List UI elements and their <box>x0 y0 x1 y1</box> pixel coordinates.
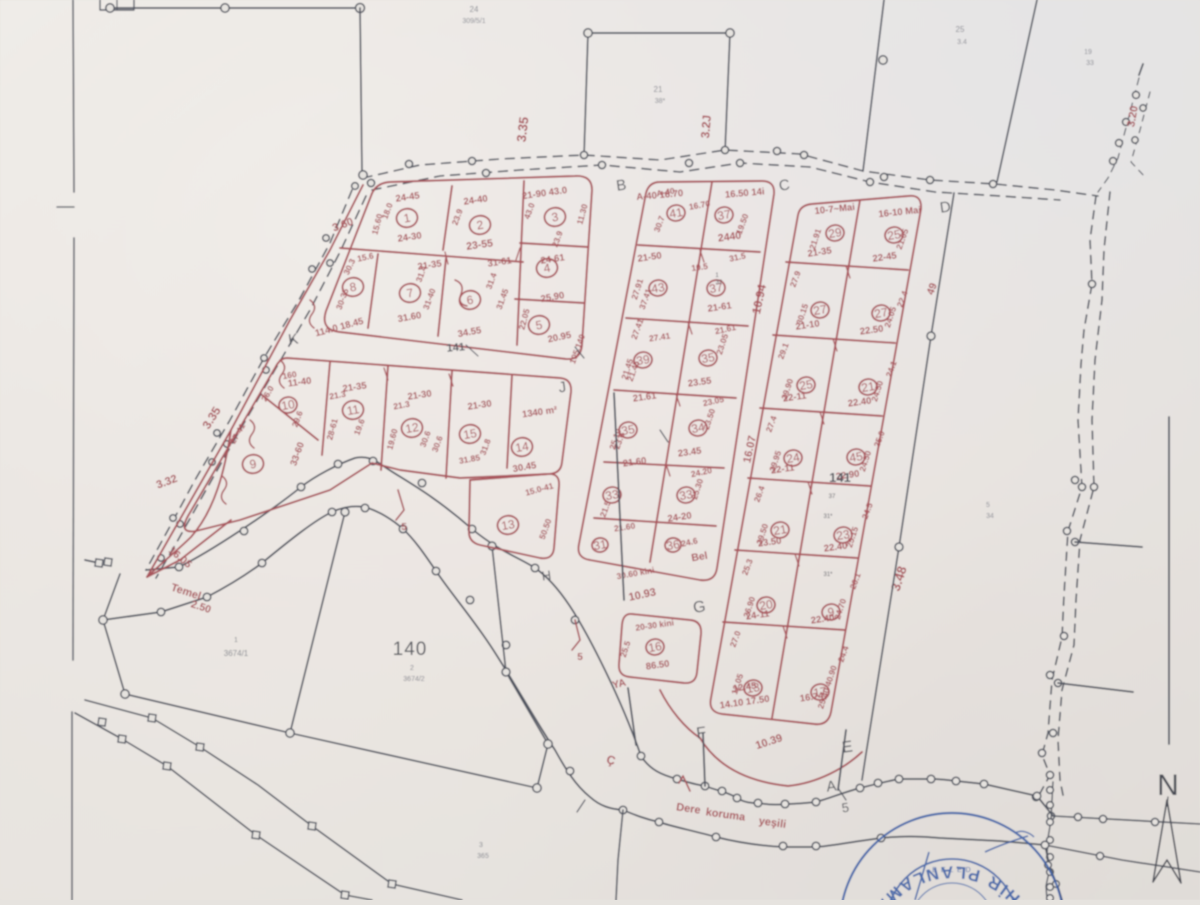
svg-text:31: 31 <box>592 537 608 553</box>
svg-text:309/5/1: 309/5/1 <box>462 18 485 25</box>
svg-text:15: 15 <box>462 426 478 442</box>
svg-text:G: G <box>692 598 707 617</box>
svg-text:3.35: 3.35 <box>514 116 532 143</box>
svg-text:3.4: 3.4 <box>957 39 967 46</box>
svg-text:43: 43 <box>650 280 666 296</box>
svg-text:365: 365 <box>477 853 489 860</box>
svg-text:140: 140 <box>393 639 428 660</box>
svg-text:33: 33 <box>1086 60 1094 67</box>
svg-text:5: 5 <box>577 652 583 663</box>
svg-text:31*: 31* <box>823 514 833 520</box>
svg-text:3674/1: 3674/1 <box>224 649 249 658</box>
svg-text:38*: 38* <box>655 98 666 105</box>
svg-text:37: 37 <box>716 207 732 223</box>
svg-text:36: 36 <box>665 537 681 553</box>
svg-text:25: 25 <box>956 25 965 34</box>
svg-text:12: 12 <box>404 420 420 436</box>
svg-text:2: 2 <box>410 665 414 672</box>
svg-text:37: 37 <box>829 494 836 500</box>
svg-text:16: 16 <box>647 639 663 655</box>
svg-text:B E L E D: B E L E D <box>932 867 971 874</box>
svg-text:3: 3 <box>479 842 483 849</box>
svg-text:13: 13 <box>500 517 516 533</box>
svg-text:27: 27 <box>812 302 828 318</box>
svg-text:34: 34 <box>986 513 994 520</box>
svg-text:141: 141 <box>446 341 465 355</box>
svg-text:41: 41 <box>668 205 684 221</box>
svg-text:141: 141 <box>829 470 851 485</box>
svg-text:10: 10 <box>280 397 296 413</box>
svg-text:14: 14 <box>514 439 530 455</box>
svg-text:3674/2: 3674/2 <box>403 676 425 683</box>
svg-text:31*: 31* <box>823 572 833 578</box>
svg-text:3.2J: 3.2J <box>698 114 714 138</box>
svg-text:32: 32 <box>716 280 723 286</box>
svg-text:19: 19 <box>1084 49 1092 56</box>
svg-text:24: 24 <box>470 5 479 14</box>
svg-text:1: 1 <box>234 637 238 644</box>
svg-text:5: 5 <box>401 522 407 533</box>
svg-text:5: 5 <box>986 502 990 509</box>
svg-text:29: 29 <box>827 225 843 241</box>
svg-text:21: 21 <box>654 85 663 94</box>
